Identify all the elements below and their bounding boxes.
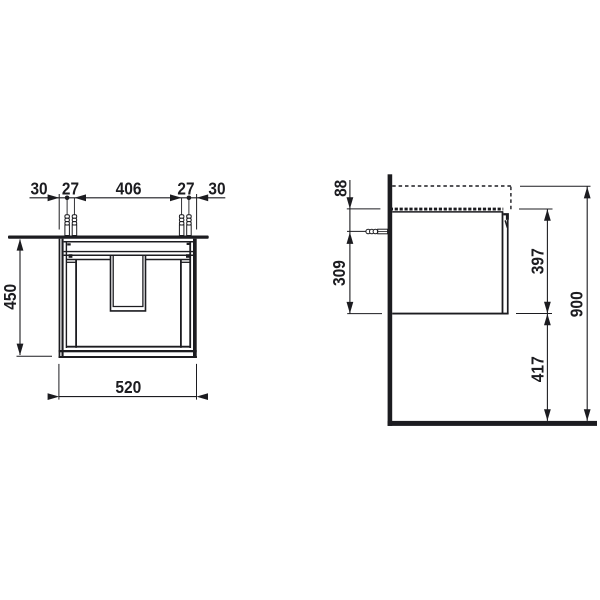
svg-text:450: 450 bbox=[0, 284, 20, 310]
svg-text:900: 900 bbox=[566, 291, 586, 317]
svg-text:397: 397 bbox=[528, 248, 548, 274]
svg-text:309: 309 bbox=[329, 260, 349, 286]
svg-text:417: 417 bbox=[528, 356, 548, 382]
svg-text:406: 406 bbox=[116, 179, 142, 199]
svg-text:30: 30 bbox=[208, 179, 225, 199]
svg-text:27: 27 bbox=[177, 179, 194, 199]
svg-text:520: 520 bbox=[115, 377, 141, 397]
svg-text:30: 30 bbox=[31, 179, 48, 199]
svg-text:88: 88 bbox=[331, 180, 351, 197]
svg-text:27: 27 bbox=[62, 179, 79, 199]
